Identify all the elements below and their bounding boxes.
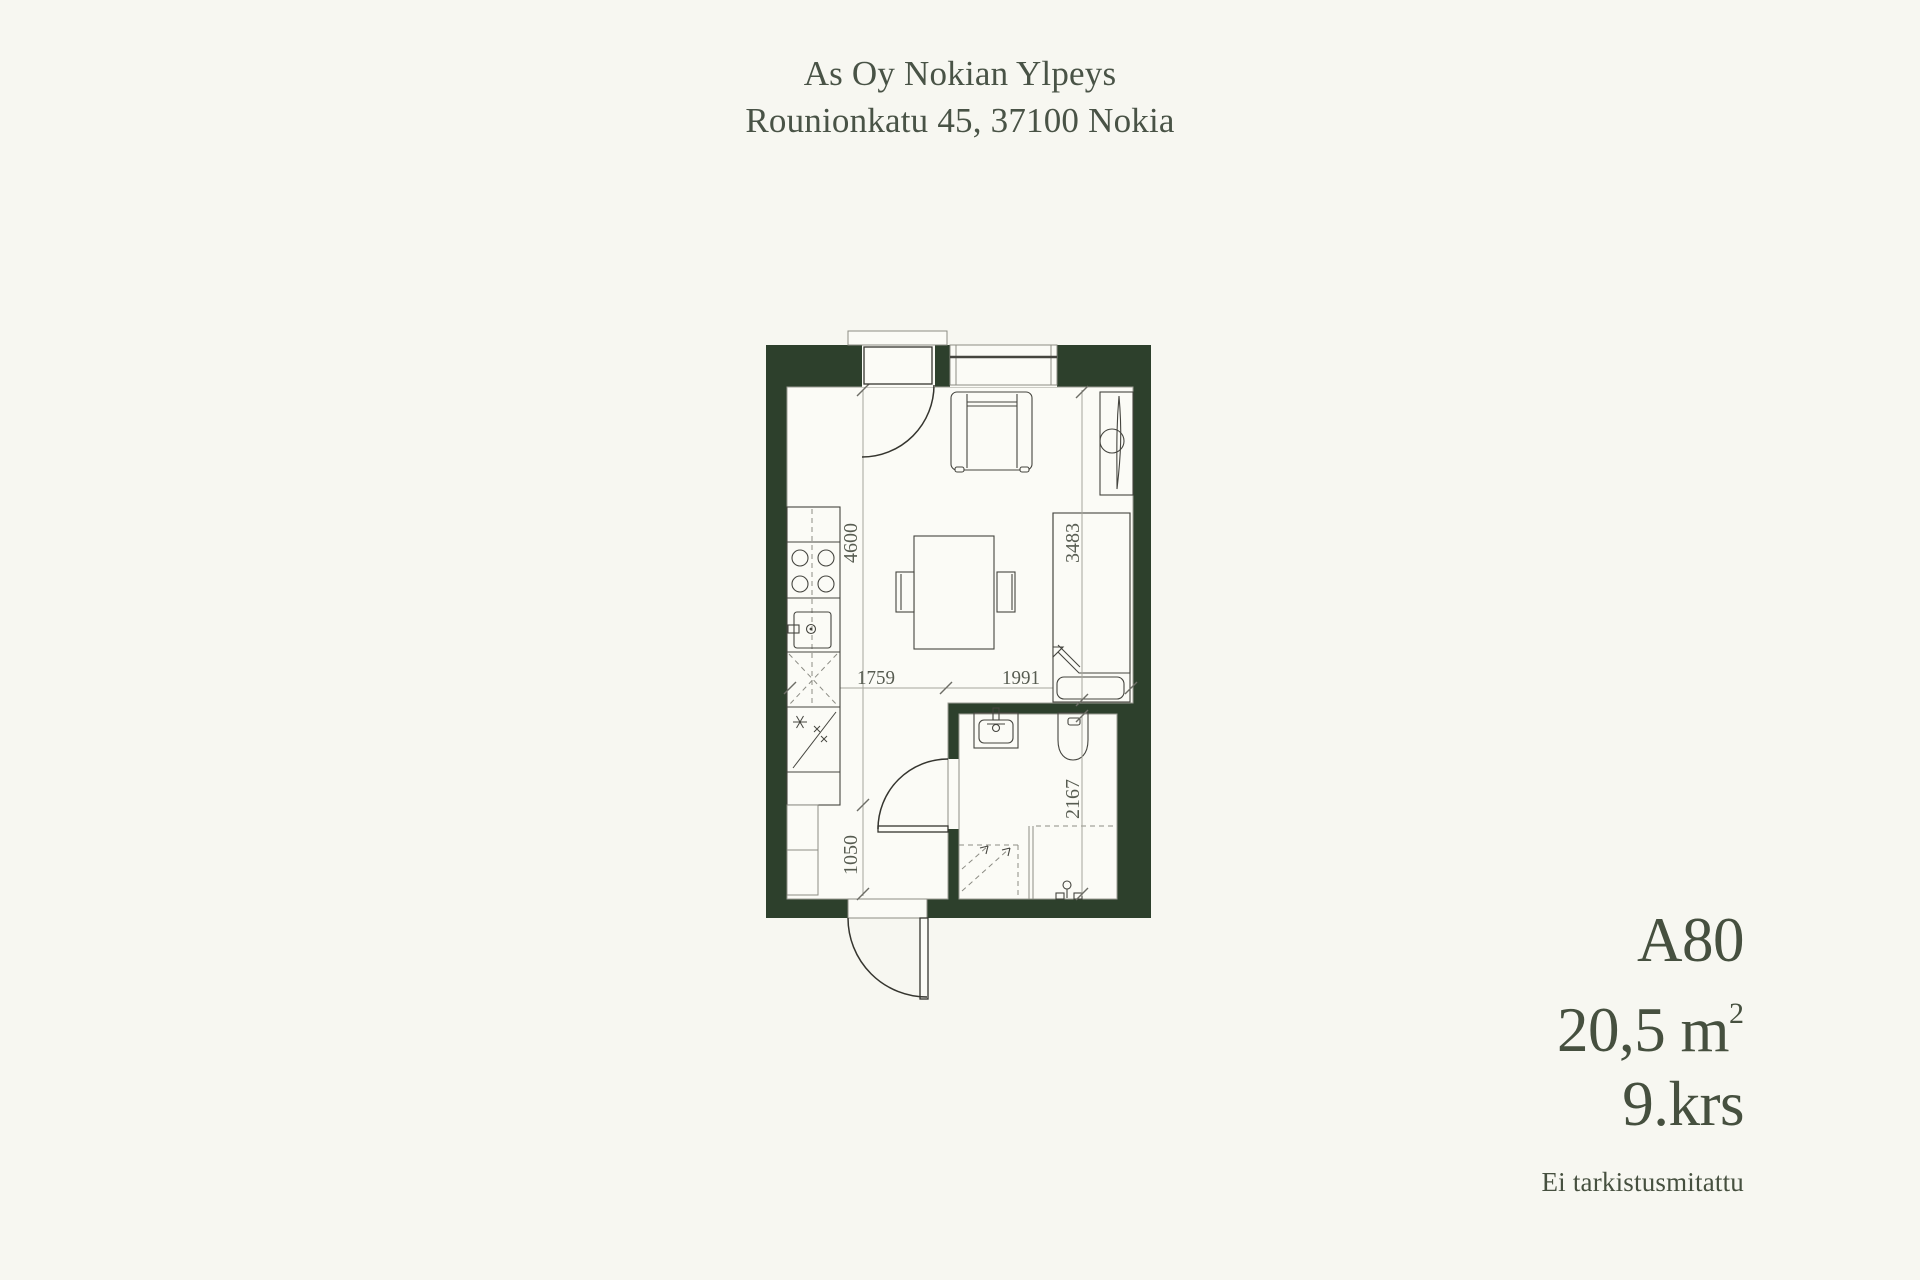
balcony-threshold — [848, 331, 947, 345]
project-title: As Oy Nokian Ylpeys Rounionkatu 45, 3710… — [0, 50, 1920, 144]
entrance-door-opening — [848, 899, 927, 918]
unit-info: A80 20,5 m2 9.krs Ei tarkistusmitattu — [1541, 903, 1744, 1197]
project-name: As Oy Nokian Ylpeys — [0, 50, 1920, 97]
dim-kitchen-width: 1759 — [857, 667, 895, 689]
floor-plan-svg: 4600 1050 3483 2167 1759 1991 — [740, 325, 1170, 1015]
hall-closet — [787, 805, 818, 895]
dim-living-width: 1991 — [1002, 667, 1040, 689]
pillow — [1057, 677, 1124, 699]
project-address: Rounionkatu 45, 37100 Nokia — [0, 97, 1920, 144]
dim-living-height: 4600 — [840, 523, 862, 563]
dim-bed-wall: 3483 — [1062, 523, 1084, 563]
bathroom-door-opening — [948, 759, 959, 829]
wardrobe — [1100, 392, 1133, 495]
armchair — [951, 392, 1032, 472]
window-opening — [950, 345, 1057, 387]
floor-plan: 4600 1050 3483 2167 1759 1991 — [740, 325, 1170, 1015]
kitchen-counter — [787, 507, 840, 805]
dim-bathroom-depth: 2167 — [1062, 779, 1084, 819]
unit-code: A80 — [1541, 903, 1744, 977]
chair-left — [896, 572, 914, 612]
area-superscript: 2 — [1729, 997, 1744, 1030]
bathroom-floor — [959, 714, 1117, 899]
unit-area: 20,5 m2 — [1541, 977, 1744, 1067]
dim-hall-height: 1050 — [840, 835, 862, 875]
entrance-door — [848, 918, 928, 999]
unit-note: Ei tarkistusmitattu — [1541, 1167, 1744, 1197]
unit-floor: 9.krs — [1541, 1067, 1744, 1141]
chair-right — [997, 572, 1015, 612]
